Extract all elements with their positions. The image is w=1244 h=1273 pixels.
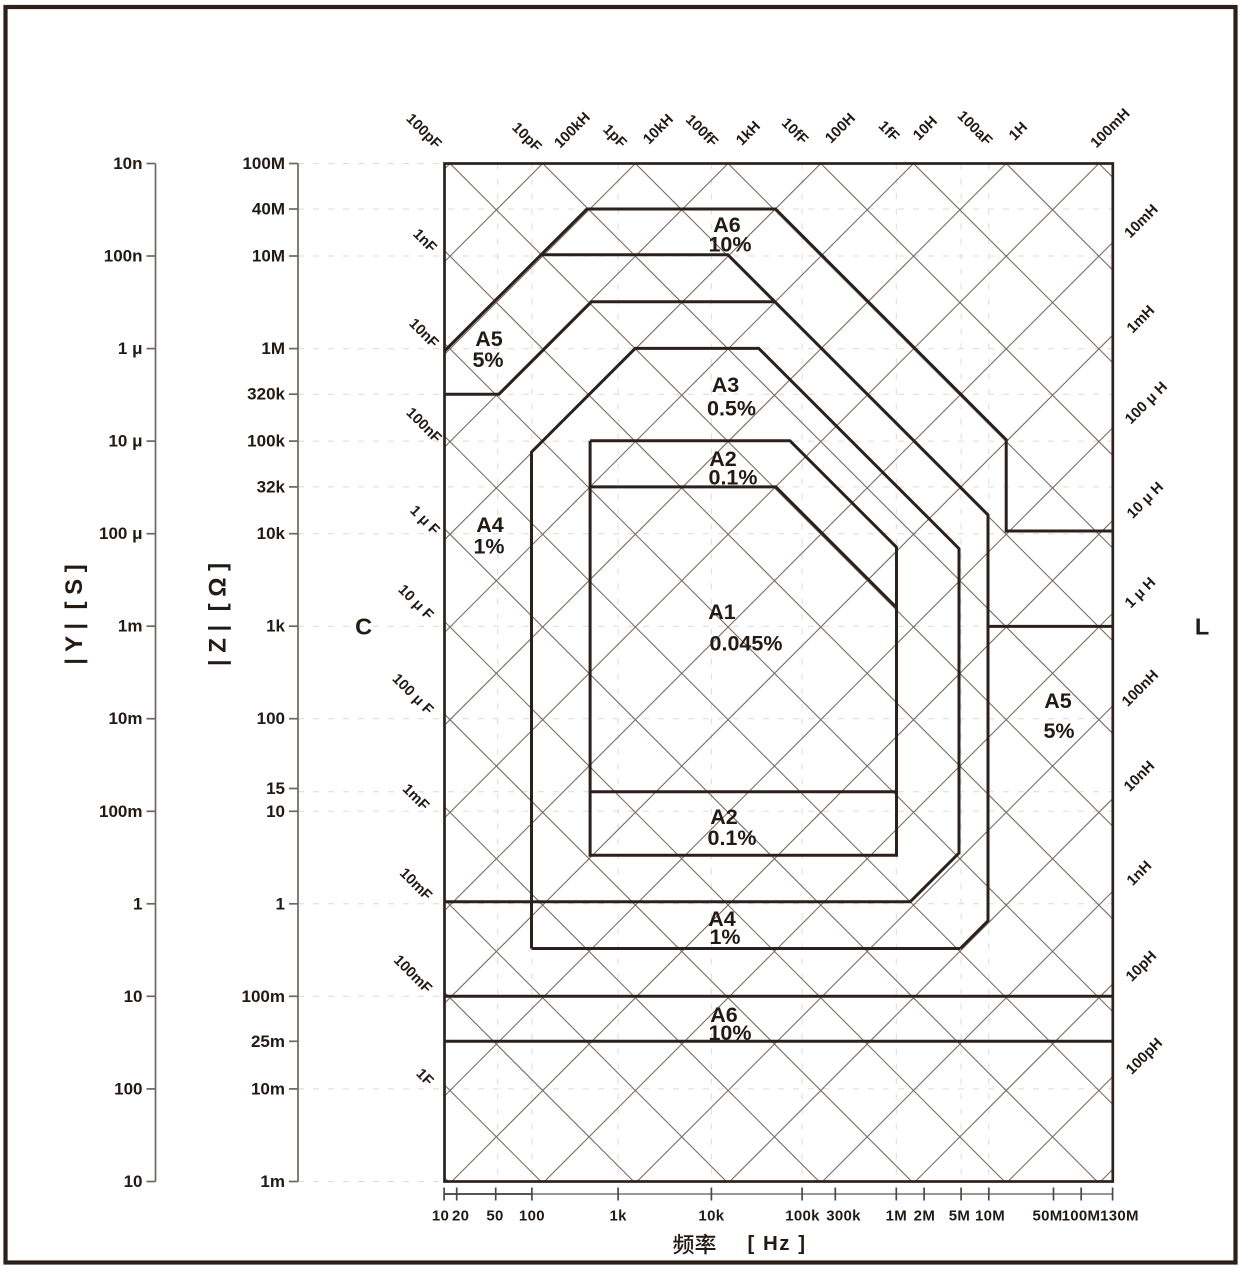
svg-text:50M: 50M	[1032, 1208, 1062, 1225]
svg-text:1: 1	[276, 894, 285, 913]
svg-text:100k: 100k	[785, 1208, 820, 1225]
svg-text:1m: 1m	[118, 617, 143, 636]
svg-text:100m: 100m	[99, 802, 142, 821]
svg-text:32k: 32k	[257, 477, 286, 496]
svg-text:1k: 1k	[609, 1208, 627, 1225]
svg-text:10m: 10m	[251, 1079, 285, 1098]
svg-text:L: L	[1195, 614, 1209, 640]
svg-text:2M: 2M	[914, 1208, 935, 1225]
svg-text:130M: 130M	[1100, 1208, 1139, 1225]
svg-text:C: C	[355, 614, 372, 640]
svg-text:10: 10	[124, 987, 143, 1006]
svg-text:10k: 10k	[257, 524, 286, 543]
svg-text:100k: 100k	[247, 432, 285, 451]
svg-text:1M: 1M	[261, 339, 285, 358]
svg-text:0.045%: 0.045%	[710, 632, 783, 656]
svg-text:100: 100	[257, 709, 285, 728]
svg-text:320k: 320k	[247, 385, 285, 404]
svg-text:| Z | [ Ω ]: | Z | [ Ω ]	[205, 563, 232, 666]
svg-text:1%: 1%	[709, 925, 740, 949]
svg-text:40M: 40M	[252, 200, 285, 219]
svg-text:5%: 5%	[472, 348, 503, 372]
svg-text:0.5%: 0.5%	[707, 397, 756, 421]
svg-text:10m: 10m	[108, 709, 142, 728]
svg-text:1m: 1m	[260, 1172, 285, 1191]
svg-text:100M: 100M	[1062, 1208, 1101, 1225]
svg-text:10%: 10%	[708, 233, 751, 257]
svg-text:10: 10	[266, 802, 285, 821]
svg-text:A1: A1	[708, 600, 736, 624]
svg-text:15: 15	[266, 779, 285, 798]
svg-text:A3: A3	[712, 373, 740, 397]
svg-text:5M: 5M	[949, 1208, 970, 1225]
svg-text:50: 50	[486, 1208, 503, 1225]
svg-text:10: 10	[124, 1172, 143, 1191]
svg-text:0.1%: 0.1%	[708, 466, 757, 490]
svg-text:1 μ: 1 μ	[118, 339, 143, 358]
svg-text:100: 100	[519, 1208, 545, 1225]
svg-text:| Y | [ S ]: | Y | [ S ]	[61, 564, 88, 665]
svg-text:1M: 1M	[886, 1208, 907, 1225]
svg-text:5%: 5%	[1043, 719, 1074, 743]
svg-text:A5: A5	[1044, 689, 1072, 713]
svg-text:A4: A4	[476, 513, 504, 537]
svg-text:100n: 100n	[104, 247, 143, 266]
svg-text:10 μ: 10 μ	[108, 432, 142, 451]
svg-text:10M: 10M	[252, 247, 285, 266]
svg-text:0.1%: 0.1%	[707, 826, 756, 850]
svg-text:25m: 25m	[251, 1032, 285, 1051]
svg-text:10n: 10n	[113, 154, 142, 173]
svg-text:10M: 10M	[975, 1208, 1005, 1225]
svg-text:[ Hz ]: [ Hz ]	[747, 1232, 806, 1255]
svg-text:100: 100	[114, 1079, 142, 1098]
svg-text:10k: 10k	[698, 1208, 724, 1225]
svg-text:1: 1	[133, 894, 142, 913]
svg-text:1k: 1k	[266, 617, 285, 636]
svg-text:1%: 1%	[473, 535, 504, 559]
svg-text:10%: 10%	[708, 1021, 751, 1045]
svg-text:100 μ: 100 μ	[99, 524, 143, 543]
svg-text:300k: 300k	[826, 1208, 861, 1225]
svg-text:100m: 100m	[242, 987, 285, 1006]
svg-text:100M: 100M	[242, 154, 285, 173]
svg-text:20: 20	[452, 1208, 469, 1225]
svg-text:10: 10	[432, 1208, 449, 1225]
